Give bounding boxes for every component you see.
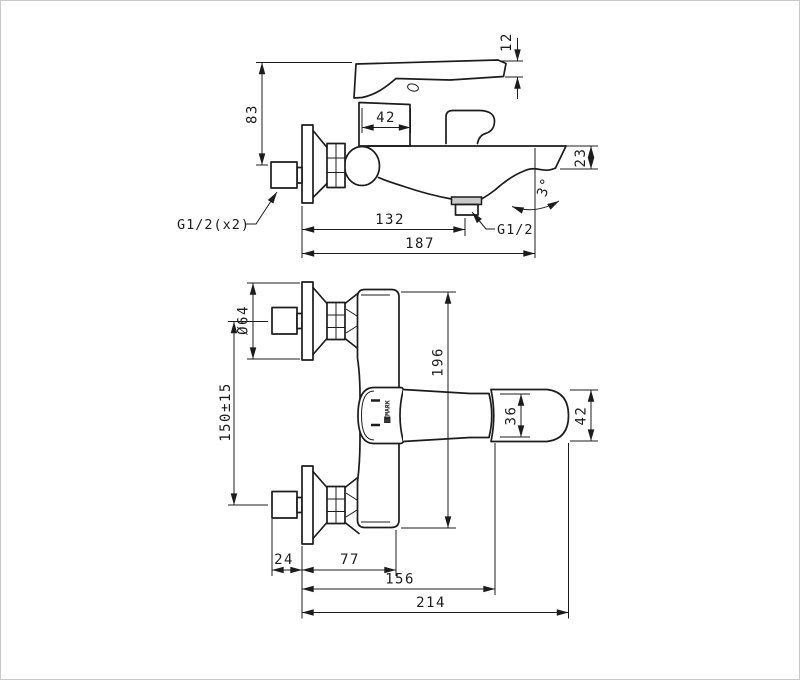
dim-label-36: 36 [504, 406, 520, 426]
side-body-underside-left [379, 178, 452, 200]
dim-label-77: 77 [340, 552, 360, 568]
dim-label-24: 24 [274, 552, 294, 568]
label-shower-thread: G1/2 [472, 212, 534, 238]
side-shower-outlet-flange [452, 197, 482, 205]
spout-angle-3deg: 3° [512, 148, 559, 258]
faucet-technical-drawing: 12 83 42 23 3° [1, 1, 799, 679]
angle-label-3: 3° [534, 175, 555, 199]
dim-label-214: 214 [416, 595, 446, 611]
dim-label-196: 196 [431, 347, 447, 377]
side-escutcheon-cone [313, 184, 327, 198]
dim-label-23: 23 [573, 148, 589, 168]
front-eccentric-square-top [272, 308, 297, 335]
front-eccentric-square-bottom [272, 492, 297, 519]
label-wall-thread: G1/2(x2) [177, 192, 277, 233]
dim-mount-spacing-150: 150±15 [218, 322, 268, 506]
front-view: LEMARK Ø64 150±15 196 36 [218, 282, 598, 619]
dim-spout-drop-23: 23 [560, 146, 598, 169]
dim-label-132: 132 [375, 212, 405, 228]
label-g12: G1/2 [497, 222, 534, 238]
drawing-canvas: 12 83 42 23 3° [0, 0, 800, 680]
side-spout-tip-edge [556, 146, 567, 168]
dim-label-187: 187 [405, 236, 435, 252]
dim-cartridge-42: 42 [362, 108, 411, 133]
dim-label-83: 83 [245, 104, 261, 124]
side-view: 12 83 42 23 3° [177, 32, 598, 258]
dim-label-156: 156 [385, 572, 415, 588]
side-body-end-cone [345, 147, 380, 186]
dim-label-42-side: 42 [376, 110, 396, 126]
front-mount-top [272, 282, 364, 360]
front-mount-bottom [272, 466, 364, 544]
brand-logo-text: LEMARK [384, 400, 392, 424]
dim-handle-tip-42: 42 [570, 390, 598, 441]
side-diverter-knob [446, 111, 495, 144]
side-shower-outlet-nipple [456, 205, 479, 216]
dim-bottom-chain: 24 77 156 214 [272, 443, 569, 619]
side-escutcheon-cone [313, 131, 327, 148]
front-escutcheon-disc-bottom [302, 466, 313, 544]
dim-label-150: 150±15 [218, 382, 234, 442]
side-eccentric-square [271, 162, 297, 188]
dim-label-42-front: 42 [574, 406, 590, 426]
front-lever-bar [403, 390, 492, 442]
side-lever-detail [407, 83, 419, 92]
front-horn-bottom [345, 523, 359, 534]
side-escutcheon-disc [302, 125, 313, 203]
dim-label-dia64: Ø64 [236, 305, 252, 335]
dim-label-12: 12 [499, 32, 515, 52]
dim-lever-tip-12: 12 [499, 32, 523, 99]
label-g12x2: G1/2(x2) [177, 217, 250, 233]
front-escutcheon-disc-top [302, 282, 313, 360]
side-lever-handle [354, 60, 506, 98]
